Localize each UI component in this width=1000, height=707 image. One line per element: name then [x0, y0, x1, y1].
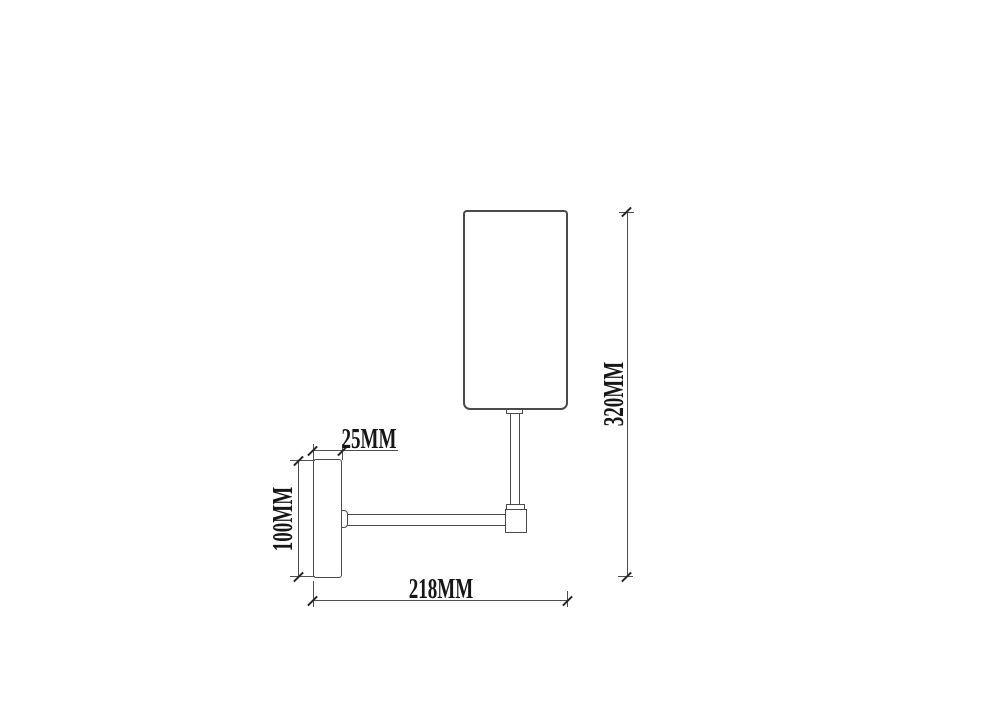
dim-label-plate-height: 100MM	[268, 487, 300, 552]
wall-mount-plate	[313, 459, 342, 578]
technical-drawing-canvas: 25MM 100MM 218MM 320MM	[0, 0, 1000, 707]
dim-label-projection: 218MM	[409, 574, 474, 606]
dim-label-plate-depth: 25MM	[342, 424, 397, 456]
extension-line	[313, 581, 314, 607]
extension-line	[290, 460, 315, 461]
elbow-joint	[505, 509, 527, 533]
extension-line	[290, 576, 315, 577]
dim-label-overall-height: 320MM	[599, 362, 631, 427]
arm-wall-connector	[341, 510, 348, 528]
lampshade-outline	[463, 210, 568, 410]
lamp-arm	[346, 514, 507, 526]
lamp-stem	[510, 413, 520, 507]
